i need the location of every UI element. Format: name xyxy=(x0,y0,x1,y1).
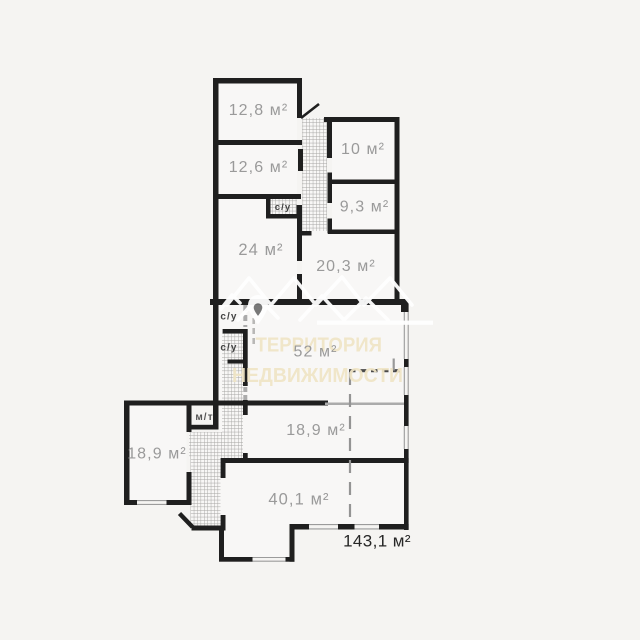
svg-text:24 м²: 24 м² xyxy=(238,241,283,259)
svg-text:с/у: с/у xyxy=(220,312,237,323)
svg-text:12,8 м²: 12,8 м² xyxy=(229,102,289,119)
svg-text:9,3 м²: 9,3 м² xyxy=(340,199,390,216)
svg-text:40,1 м²: 40,1 м² xyxy=(268,490,329,508)
svg-text:18,9 м²: 18,9 м² xyxy=(127,446,187,463)
svg-text:18,9 м²: 18,9 м² xyxy=(286,422,346,439)
svg-text:143,1 м²: 143,1 м² xyxy=(343,531,411,550)
svg-text:с/у: с/у xyxy=(275,202,292,213)
svg-text:м/т: м/т xyxy=(195,412,213,423)
svg-text:52 м²: 52 м² xyxy=(293,344,337,361)
svg-text:с/у: с/у xyxy=(220,343,237,354)
svg-text:НЕДВИЖИМОСТИ: НЕДВИЖИМОСТИ xyxy=(232,365,403,387)
svg-text:12,6 м²: 12,6 м² xyxy=(229,159,289,176)
svg-text:10 м²: 10 м² xyxy=(341,141,385,158)
svg-text:20,3 м²: 20,3 м² xyxy=(316,258,376,275)
